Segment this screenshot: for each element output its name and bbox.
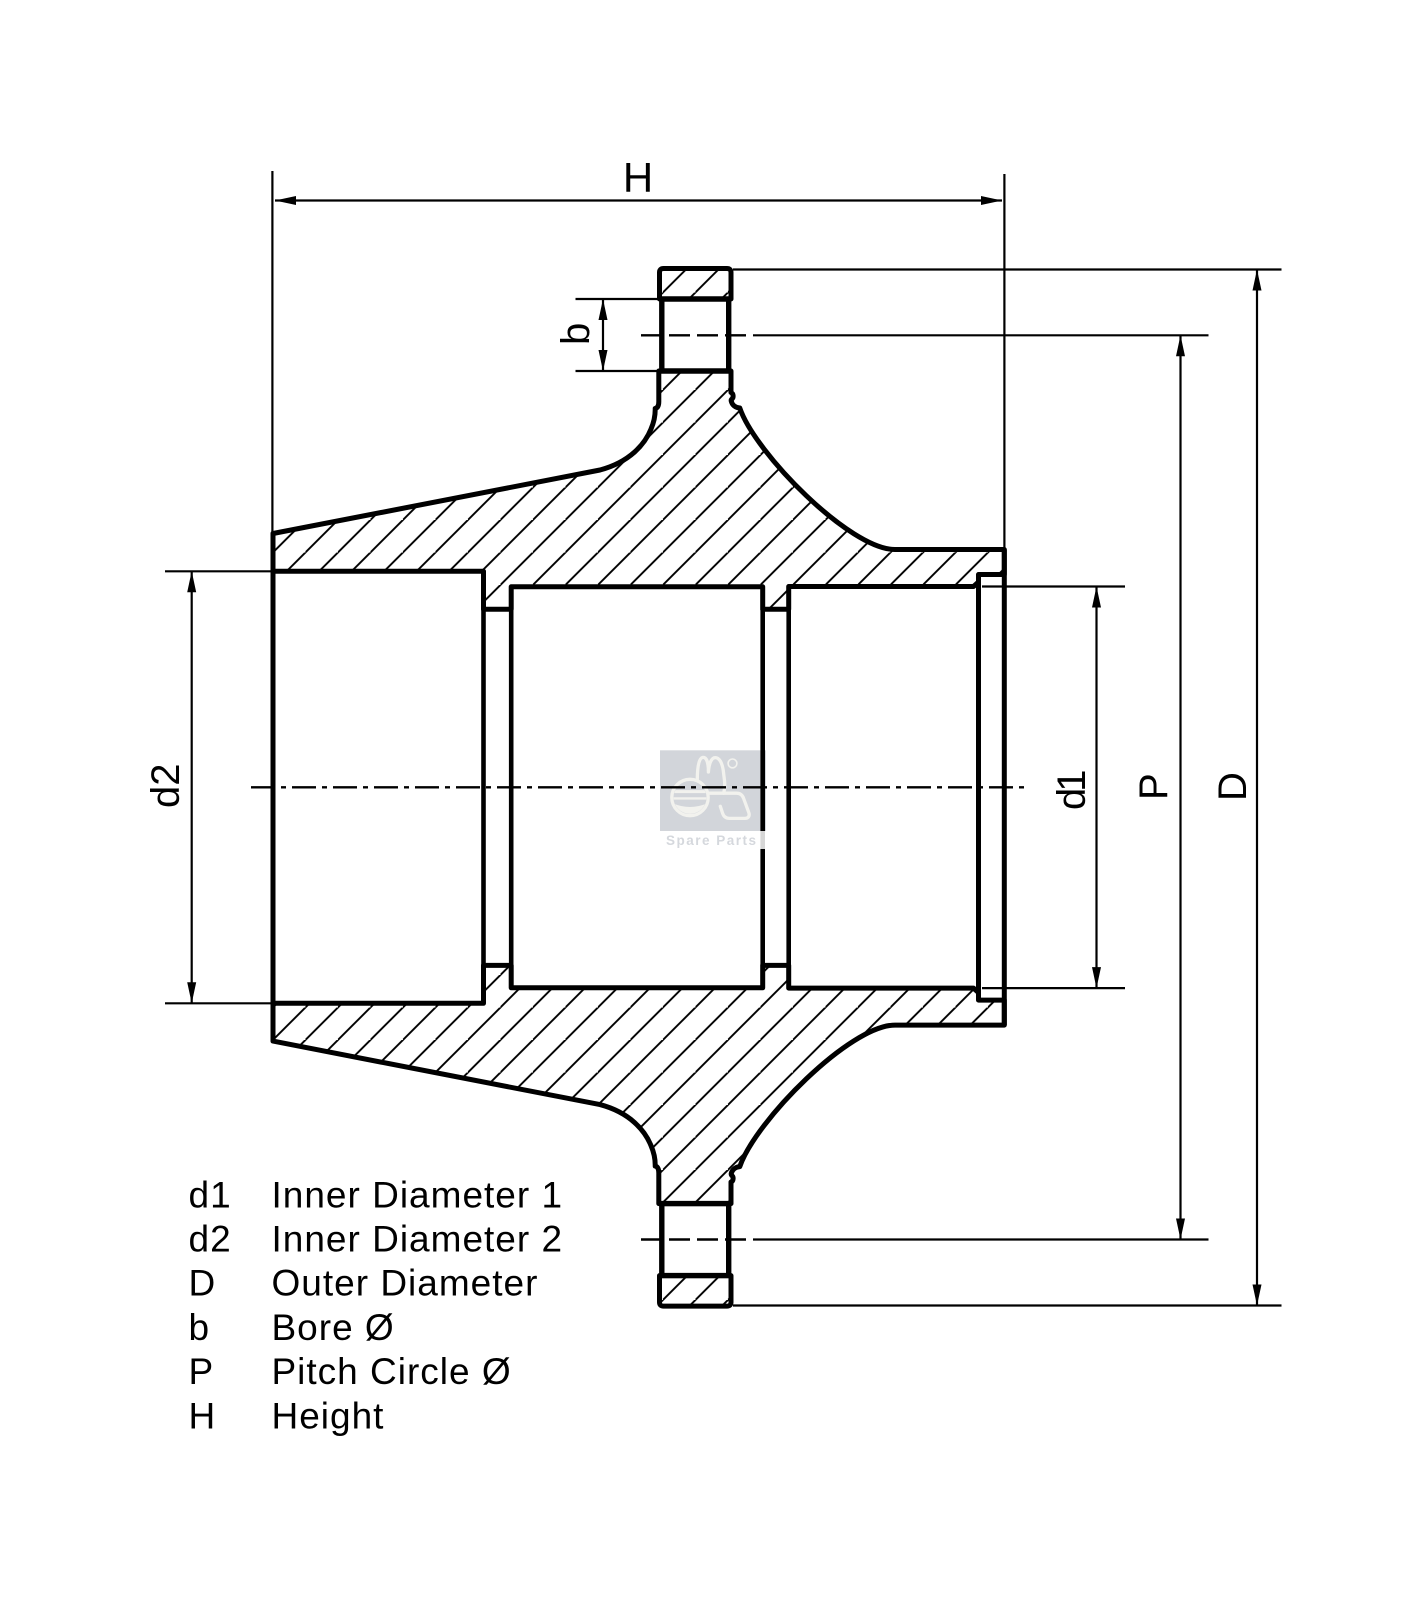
svg-text:Outer Diameter: Outer Diameter xyxy=(272,1263,539,1304)
svg-text:H: H xyxy=(189,1395,217,1436)
svg-text:D: D xyxy=(1211,772,1255,801)
svg-text:Height: Height xyxy=(272,1395,385,1436)
svg-text:Bore Ø: Bore Ø xyxy=(272,1307,395,1348)
svg-text:H: H xyxy=(623,154,653,201)
svg-text:Pitch Circle Ø: Pitch Circle Ø xyxy=(272,1351,512,1392)
svg-text:Inner Diameter 2: Inner Diameter 2 xyxy=(272,1219,564,1260)
svg-text:D: D xyxy=(189,1263,217,1304)
svg-text:P: P xyxy=(1132,773,1176,800)
svg-text:b: b xyxy=(554,323,598,345)
svg-text:d1: d1 xyxy=(1050,771,1094,810)
svg-text:b: b xyxy=(189,1307,211,1348)
svg-text:Spare Parts: Spare Parts xyxy=(666,833,758,848)
svg-text:d1: d1 xyxy=(189,1174,232,1215)
svg-text:P: P xyxy=(189,1351,215,1392)
svg-text:d2: d2 xyxy=(144,764,188,809)
svg-text:d2: d2 xyxy=(189,1219,232,1260)
svg-text:Inner Diameter 1: Inner Diameter 1 xyxy=(272,1174,564,1215)
